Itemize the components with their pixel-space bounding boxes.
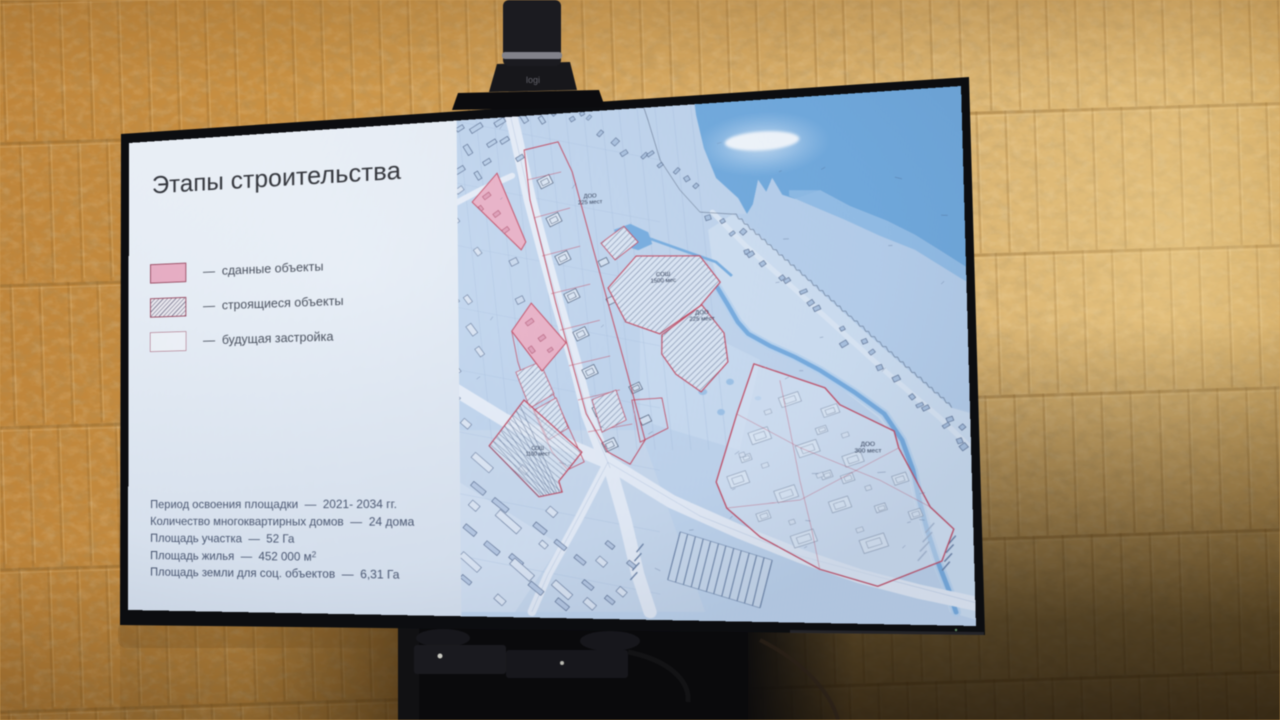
svg-text:logi: logi: [526, 75, 540, 85]
